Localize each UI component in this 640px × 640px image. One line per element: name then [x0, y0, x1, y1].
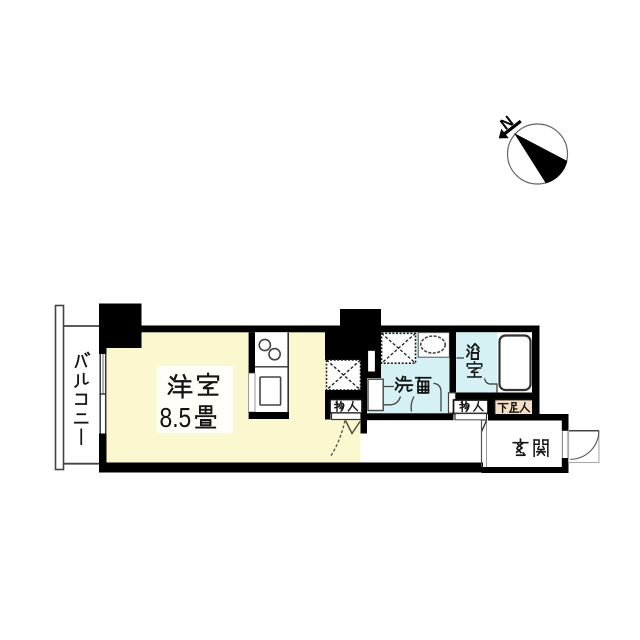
svg-text:8.5: 8.5: [160, 403, 192, 433]
